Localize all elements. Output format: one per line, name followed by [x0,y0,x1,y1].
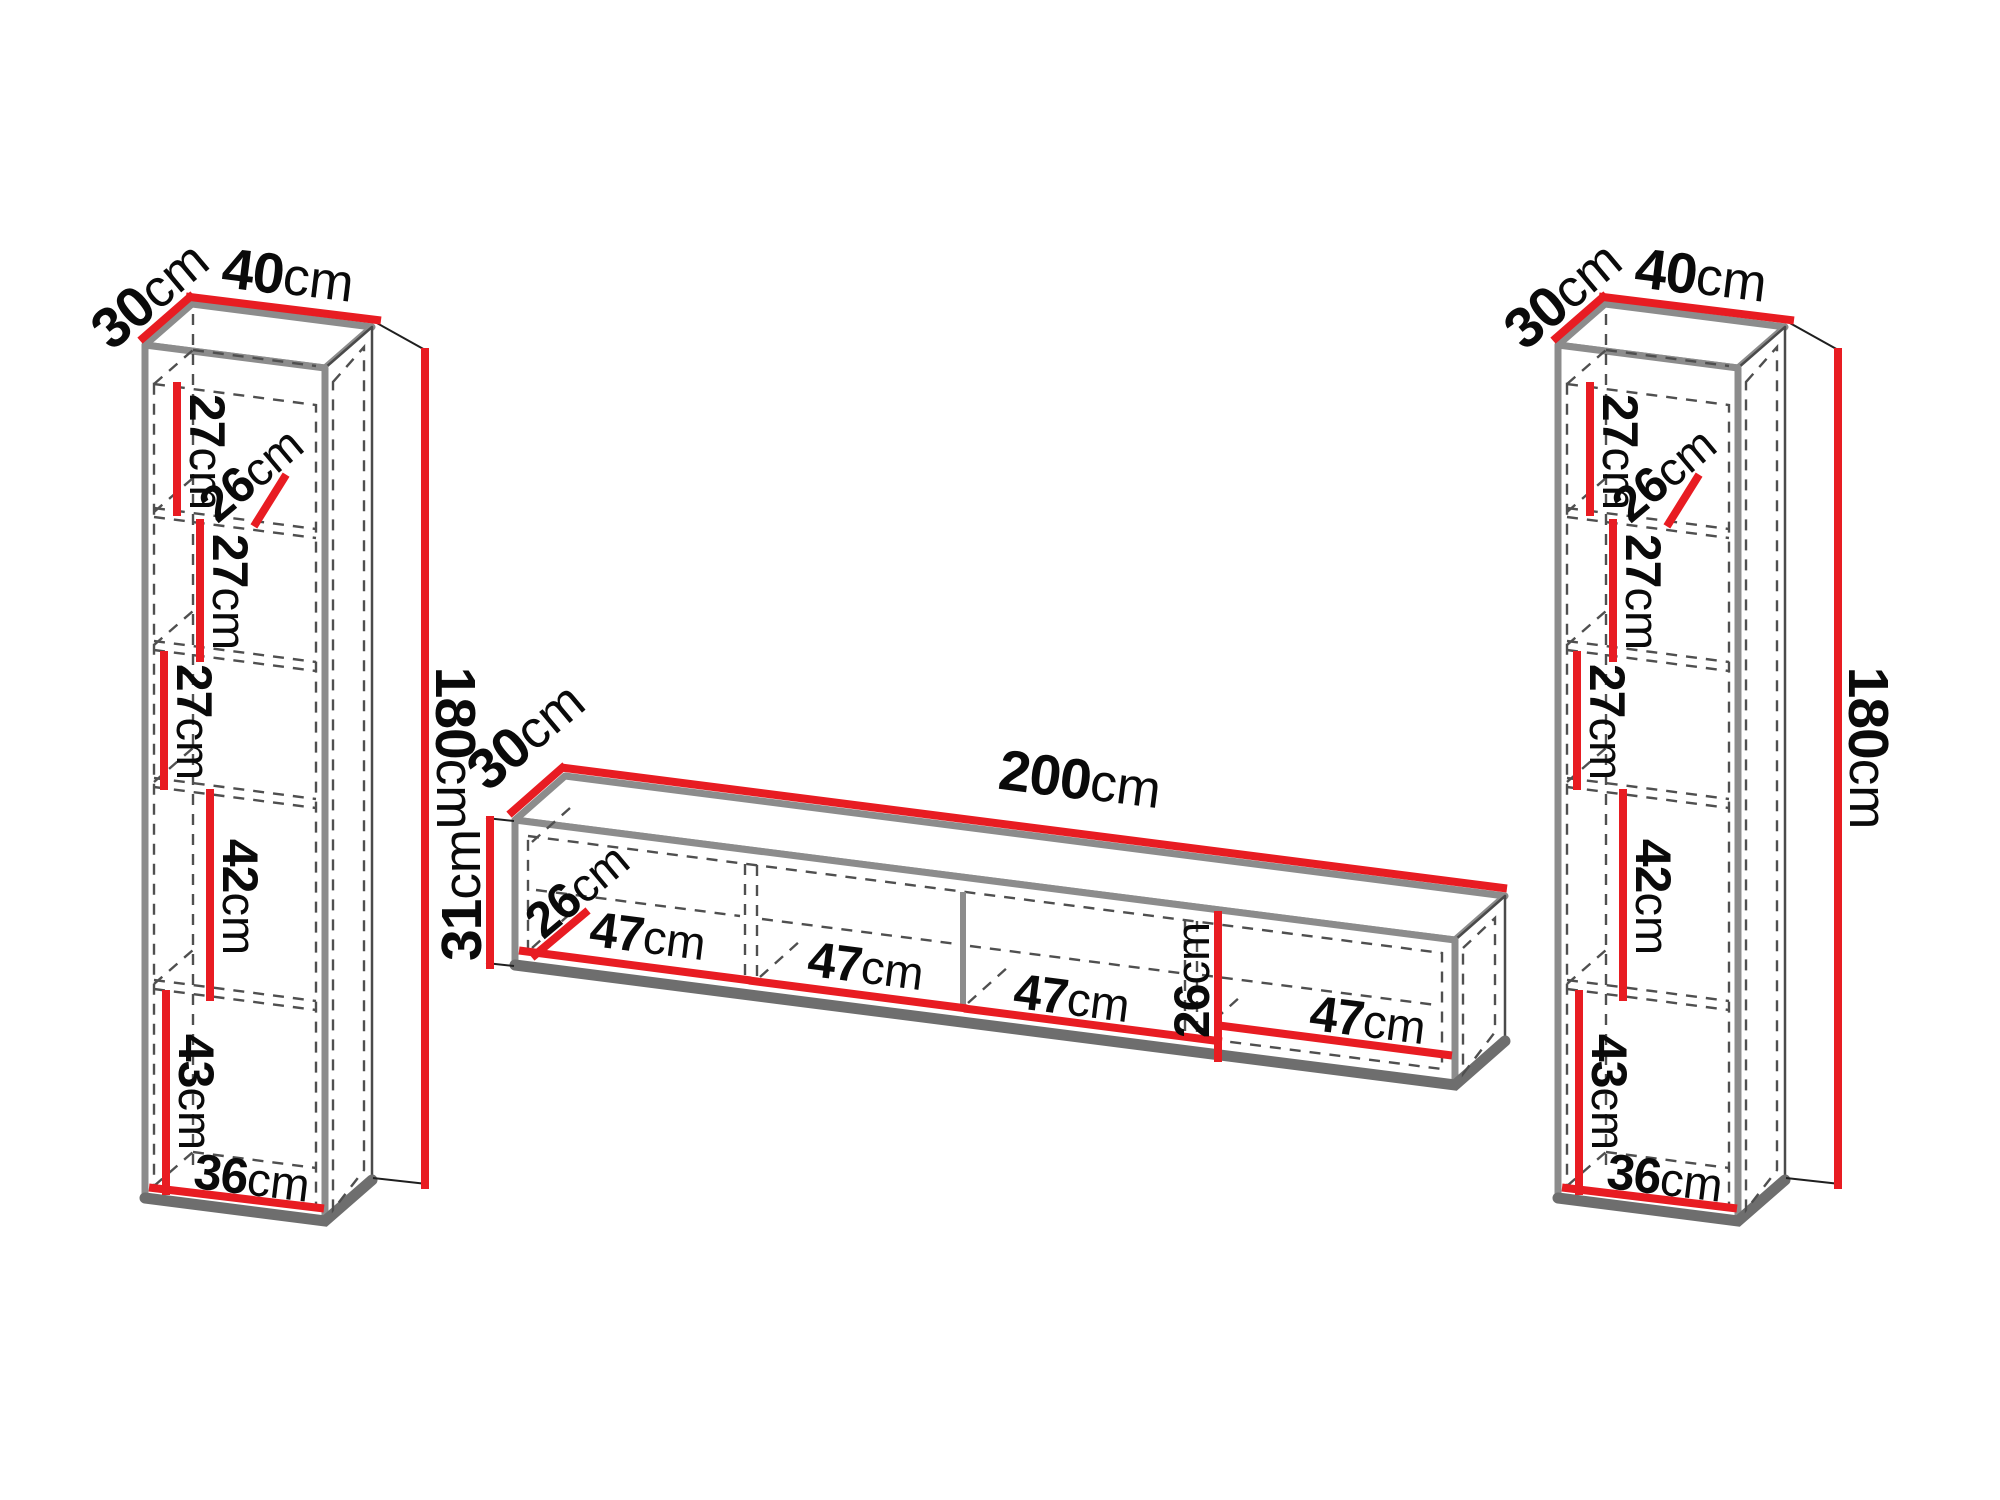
extension-line-bottom [1786,1178,1840,1184]
section2-label: 27cm [202,534,258,650]
page: 30cm 40cm 180cm 27cm 26cm 27cm 27cm 42cm… [0,0,2000,1500]
furniture-dimension-diagram: 30cm 40cm 180cm 27cm 26cm 27cm 27cm 42cm… [0,0,2000,1500]
section3-label: 27cm [166,664,222,780]
right-cabinet: 30cm 40cm 180cm 27cm 26cm 27cm 27cm 42cm… [1492,228,1900,1221]
section4-label: 42cm [1625,839,1681,955]
section5-label: 43cm [168,1034,224,1150]
width-label: 200cm [995,738,1165,822]
extension-line-top [1788,322,1840,351]
extension-line-bottom [373,1178,427,1184]
height-label: 180cm [1836,667,1900,830]
section4-label: 42cm [212,839,268,955]
section3-label: 27cm [1579,664,1635,780]
interior-height-label: 26cm [1164,922,1220,1038]
height-label: 31cm [430,829,494,961]
tv-stand: 30cm 200cm 31cm 26cm 47cm 47cm 47cm 26cm… [430,669,1505,1085]
extension-line-top [375,322,427,351]
section2-label: 27cm [1615,534,1671,650]
left-cabinet: 30cm 40cm 180cm 27cm 26cm 27cm 27cm 42cm… [79,228,487,1221]
section5-label: 43cm [1581,1034,1637,1150]
